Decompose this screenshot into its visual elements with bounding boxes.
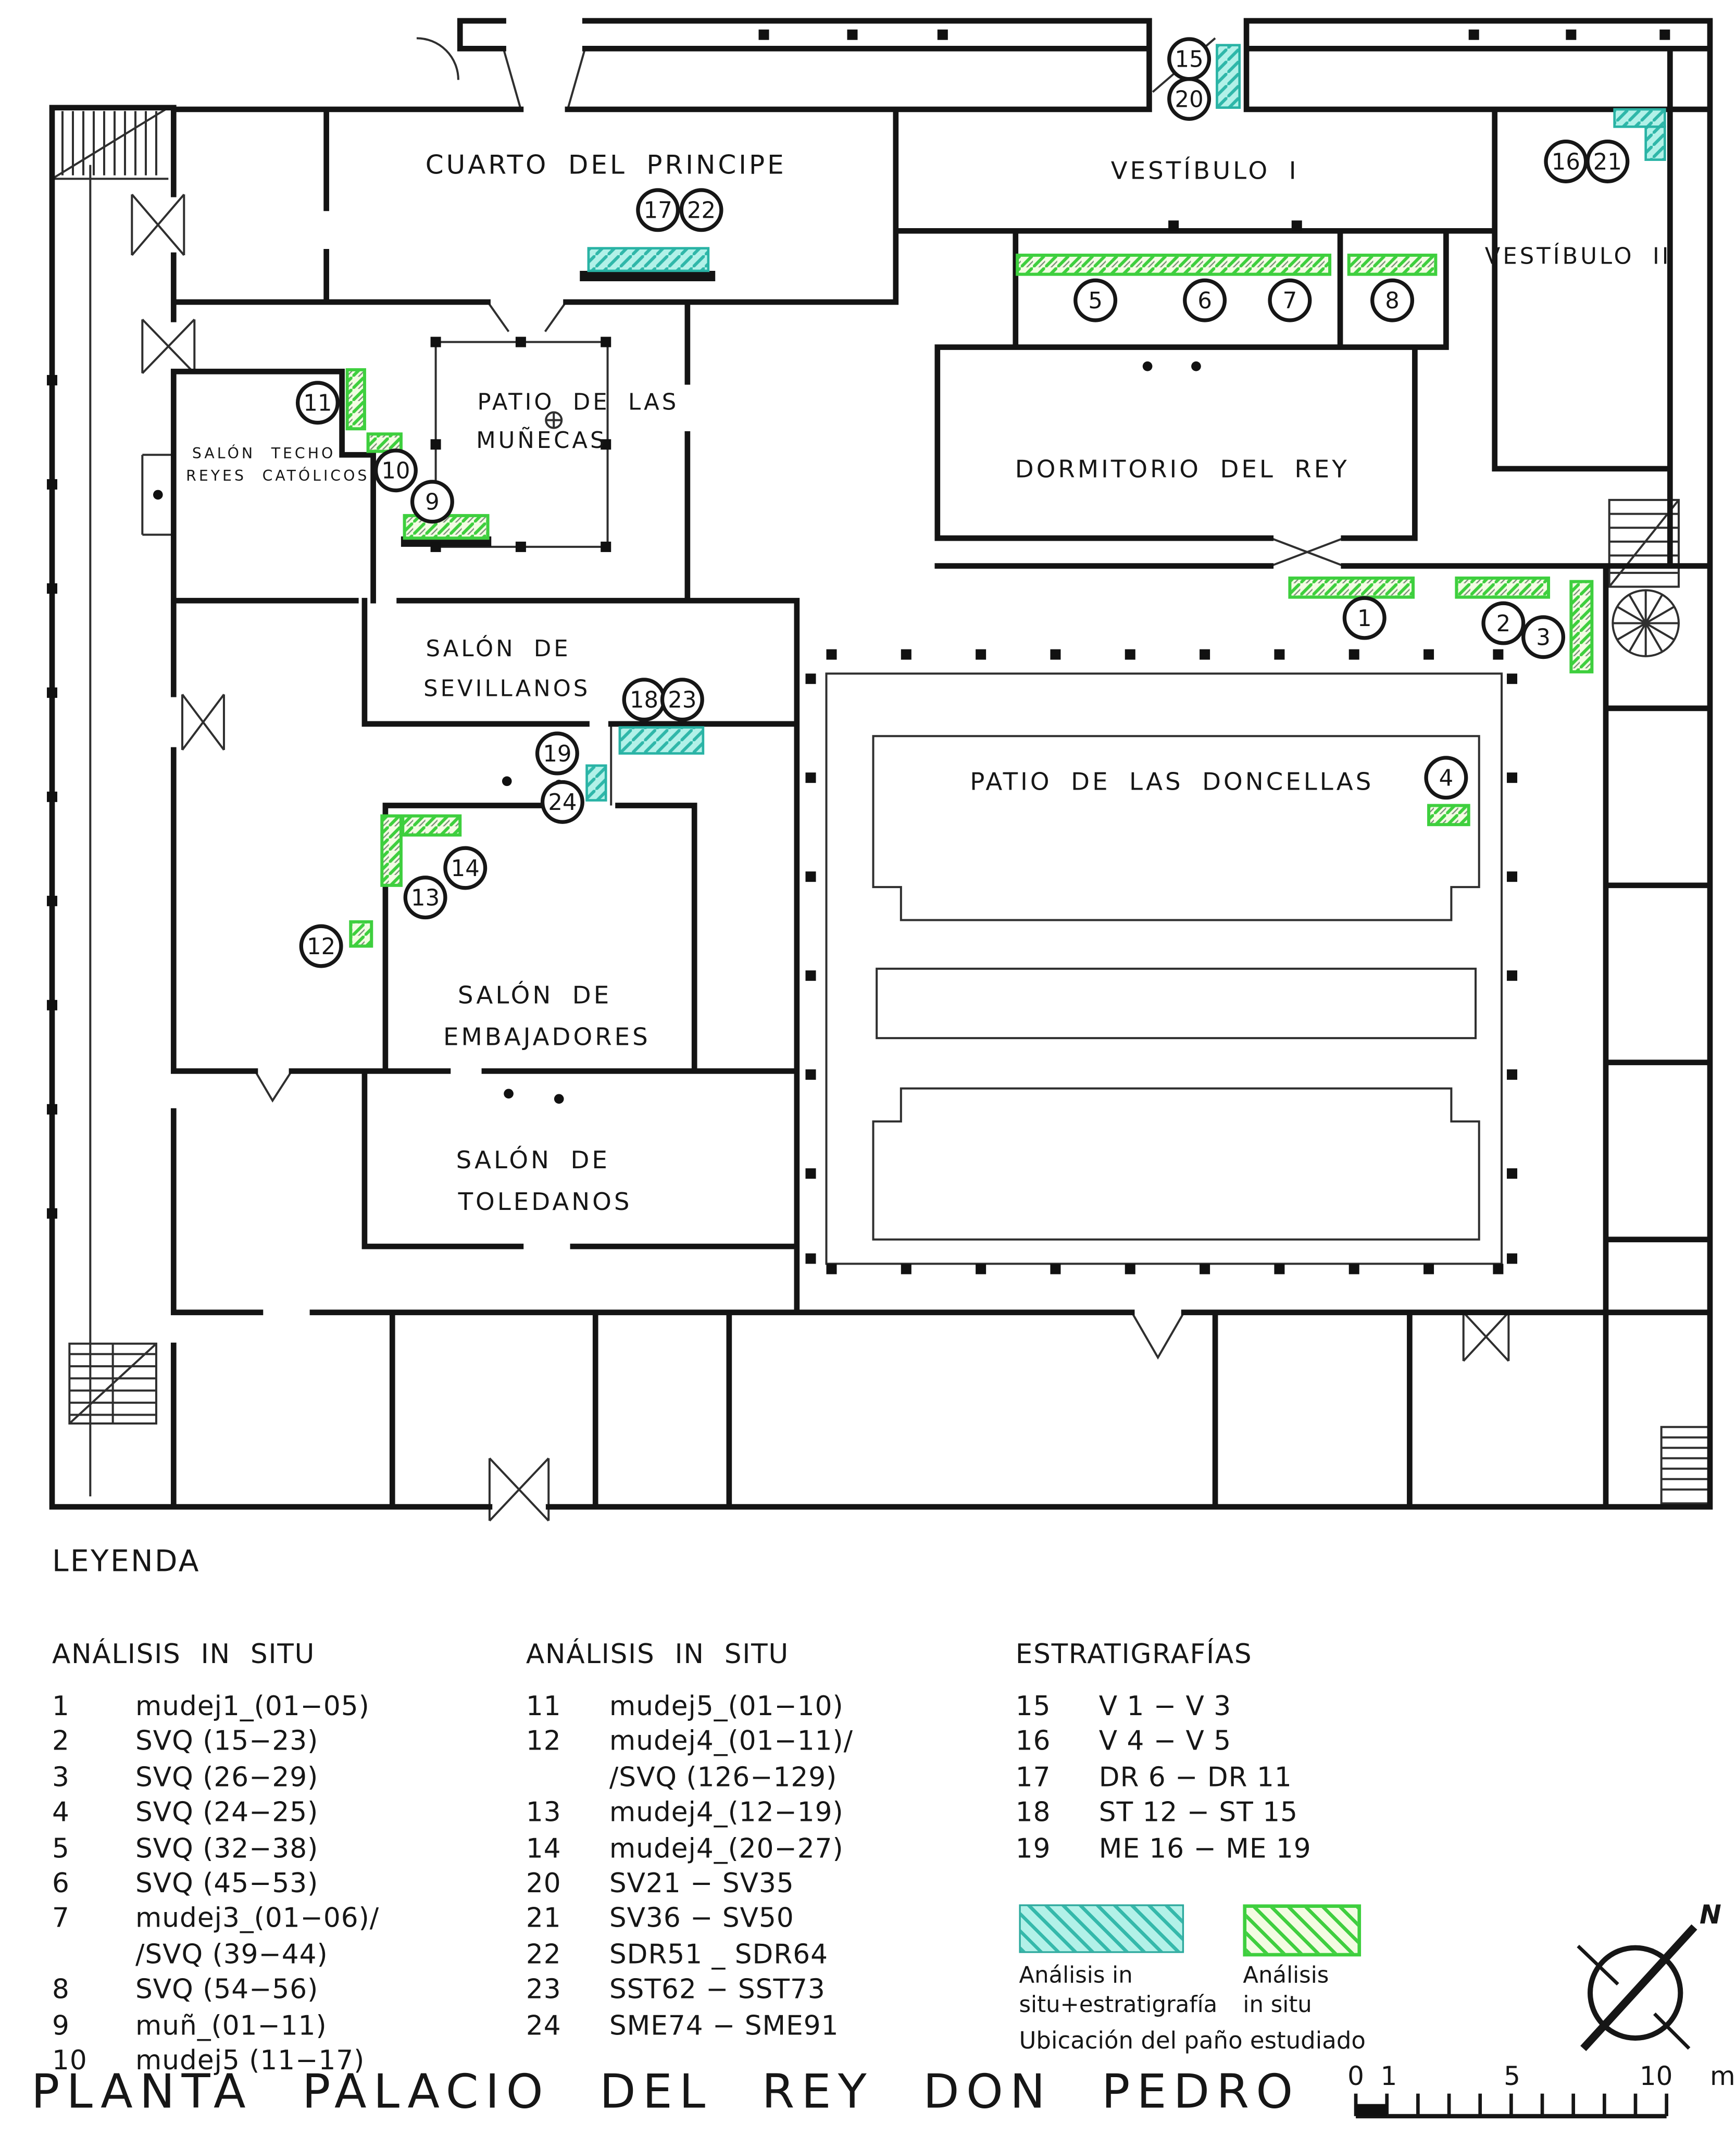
hatch-green-5-6-7 [1017, 255, 1330, 274]
legend-item-8: 8SVQ (54−56) [52, 1972, 507, 2008]
legend-item-number: 14 [526, 1831, 609, 1866]
marker-9: 9 [413, 482, 453, 522]
hatch-cyan-16-21-a [1615, 109, 1665, 127]
scale-10: 10 [1640, 2061, 1673, 2091]
legend-item-number: 8 [52, 1972, 135, 2008]
svg-text:22: 22 [687, 198, 716, 224]
marker-8: 8 [1372, 280, 1413, 320]
legend-item-23: 23SST62 − SST73 [526, 1972, 998, 2008]
legend-item-24: 24SME74 − SME91 [526, 2008, 998, 2043]
legend-item-number: 11 [526, 1689, 609, 1725]
svg-text:16: 16 [1552, 149, 1580, 175]
room-label: VESTÍBULO II [1485, 243, 1671, 270]
room-label: CUARTO DEL PRINCIPE [426, 149, 786, 180]
legend-column-2: ANÁLISIS IN SITU 11mudej5_(01−10)12mudej… [526, 1639, 998, 2043]
room-label: DORMITORIO DEL REY [1015, 456, 1350, 484]
legend-item-label: V 4 − V 5 [1099, 1725, 1231, 1760]
door-x-6 [1464, 1313, 1509, 1361]
legend-item-number: 24 [526, 2008, 609, 2043]
legend-item-number: 20 [526, 1866, 609, 1902]
hatch-cyan-18-23 [620, 728, 703, 754]
north-arrow: N [1578, 1900, 1721, 2048]
legend-item-label: SVQ (24−25) [135, 1795, 318, 1831]
marker-3: 3 [1523, 617, 1564, 657]
room-label: TOLEDANOS [458, 1188, 632, 1216]
legend-item-number: 12 [526, 1725, 609, 1760]
room-label: SALÓN DE [456, 1146, 610, 1175]
legend-item-label: mudej4_(20−27) [609, 1831, 844, 1866]
svg-text:21: 21 [1593, 149, 1622, 175]
legend-item-14: 14mudej4_(20−27) [526, 1831, 998, 1866]
legend-item-number: 21 [526, 1902, 609, 1937]
marker-6: 6 [1185, 280, 1225, 320]
svg-text:4: 4 [1439, 766, 1454, 792]
door-x-3 [182, 694, 224, 750]
legend-item-7-cont: /SVQ (39−44) [52, 1937, 507, 1972]
swatch-label-line: Análisis in [1019, 1964, 1241, 1992]
legend-item-number: 3 [52, 1760, 135, 1795]
marker-15: 15 [1169, 39, 1209, 79]
swatch-label-green: Análisisin situ [1243, 1964, 1399, 2021]
room-label: MUÑECAS [476, 427, 607, 454]
legend-item-4: 4SVQ (24−25) [52, 1795, 507, 1831]
marker-22: 22 [681, 190, 721, 230]
legend-item-9: 9muñ_(01−11) [52, 2008, 507, 2043]
legend-item-number: 1 [52, 1689, 135, 1725]
svg-text:1: 1 [1357, 606, 1372, 632]
page-viewport: 123456789101112131415161718192021222324 … [0, 0, 1736, 2136]
marker-18: 18 [624, 680, 664, 720]
svg-text:6: 6 [1197, 288, 1212, 314]
legend-item-number: 9 [52, 2008, 135, 2043]
legend-item-label: SVQ (26−29) [135, 1760, 318, 1795]
legend-item-6: 6SVQ (45−53) [52, 1866, 507, 1902]
scale-5: 5 [1504, 2061, 1520, 2091]
door-x-1 [132, 194, 184, 255]
room-label: PATIO DE LAS DONCELLAS [970, 768, 1373, 796]
legend-column-3: ESTRATIGRAFÍAS 15V 1 − V 316V 4 − V 517D… [1016, 1639, 1380, 1866]
doncellas-parterre-top [873, 736, 1479, 920]
hatch-green-8 [1349, 255, 1436, 274]
legend-item-label: mudej4_(12−19) [609, 1795, 844, 1831]
svg-text:12: 12 [307, 934, 335, 960]
legend-item-label: ST 12 − ST 15 [1099, 1795, 1298, 1831]
legend-item-label: SME74 − SME91 [609, 2008, 839, 2043]
legend-item-label: V 1 − V 3 [1099, 1689, 1231, 1725]
legend-item-label: SVQ (32−38) [135, 1831, 318, 1866]
svg-text:24: 24 [548, 790, 577, 816]
legend-item-label: SV36 − SV50 [609, 1902, 794, 1937]
legend-heading: LEYENDA [52, 1545, 201, 1580]
marker-2: 2 [1483, 603, 1523, 643]
marker-17: 17 [638, 190, 678, 230]
legend-item-label: mudej5_(01−10) [609, 1689, 844, 1725]
swatch-label-line: situ+estratigrafía [1019, 1992, 1241, 2021]
svg-text:10: 10 [381, 458, 410, 484]
svg-text:15: 15 [1175, 47, 1204, 73]
marker-14: 14 [445, 848, 485, 888]
drawing-title: PLANTA PALACIO DEL REY DON PEDRO [31, 2066, 1300, 2119]
legend-item-5: 5SVQ (32−38) [52, 1831, 507, 1866]
marker-13: 13 [405, 878, 445, 918]
swatch-analisis-in-situ [1243, 1904, 1361, 1956]
marker-11: 11 [298, 383, 338, 423]
door-x-4 [490, 1458, 548, 1521]
marker-5: 5 [1076, 280, 1116, 320]
svg-text:3: 3 [1536, 625, 1551, 651]
svg-text:17: 17 [644, 198, 672, 224]
marker-7: 7 [1270, 280, 1310, 320]
svg-text:19: 19 [543, 741, 571, 767]
legend-item-label: DR 6 − DR 11 [1099, 1760, 1292, 1795]
legend-item-number: 19 [1016, 1831, 1099, 1866]
marker-23: 23 [663, 680, 703, 720]
hatch-green-4 [1429, 806, 1469, 825]
legend-item-label: SST62 − SST73 [609, 1972, 826, 2008]
legend-item-label: SVQ (54−56) [135, 1972, 318, 2008]
legend-item-label: SVQ (45−53) [135, 1866, 318, 1902]
svg-text:2: 2 [1496, 611, 1511, 637]
legend-item-label: mudej1_(01−05) [135, 1689, 370, 1725]
swatch-label-line: Análisis [1243, 1964, 1399, 1992]
legend-item-label: muñ_(01−11) [135, 2008, 327, 2043]
legend-item-21: 21SV36 − SV50 [526, 1902, 998, 1937]
room-label: VESTÍBULO I [1111, 156, 1299, 185]
legend-item-label: mudej4_(01−11)/ [609, 1725, 853, 1760]
room-label: SALÓN TECHO [192, 444, 335, 462]
legend-item-label: mudej3_(01−06)/ [135, 1902, 379, 1937]
legend-item-number: 23 [526, 1972, 609, 2008]
legend-item-number: 4 [52, 1795, 135, 1831]
marker-10: 10 [376, 451, 416, 491]
legend-item-label: SV21 − SV35 [609, 1866, 794, 1902]
legend-item-19: 19ME 16 − ME 19 [1016, 1831, 1380, 1866]
svg-text:14: 14 [451, 856, 480, 882]
legend-item-20: 20SV21 − SV35 [526, 1866, 998, 1902]
stair-top-left [52, 108, 168, 179]
legend-item-number: 2 [52, 1725, 135, 1760]
hatch-green-3 [1571, 582, 1592, 672]
legend-item-13: 13mudej4_(12−19) [526, 1795, 998, 1831]
svg-text:8: 8 [1385, 288, 1400, 314]
svg-text:9: 9 [425, 490, 440, 516]
scale-0: 0 [1347, 2061, 1364, 2091]
legend-item-number: 18 [1016, 1795, 1099, 1831]
legend-item-number: 7 [52, 1902, 135, 1937]
legend-item-12-cont: /SVQ (126−129) [526, 1760, 998, 1795]
scale-bar-ticks [1356, 2094, 1667, 2116]
legend-item-15: 15V 1 − V 3 [1016, 1689, 1380, 1725]
scale-unit: m [1710, 2061, 1735, 2091]
legend-item-1: 1mudej1_(01−05) [52, 1689, 507, 1725]
scale-1: 1 [1380, 2061, 1397, 2091]
legend-item-number: 15 [1016, 1689, 1099, 1725]
legend-item-label: /SVQ (126−129) [609, 1760, 837, 1795]
legend-item-17: 17DR 6 − DR 11 [1016, 1760, 1380, 1795]
legend-column-1-heading: ANÁLISIS IN SITU [52, 1639, 507, 1670]
svg-text:7: 7 [1283, 288, 1297, 314]
marker-4: 4 [1426, 758, 1466, 798]
legend-item-18: 18ST 12 − ST 15 [1016, 1795, 1380, 1831]
stair-bottom-right [1662, 1427, 1710, 1504]
legend-item-22: 22SDR51 _ SDR64 [526, 1937, 998, 1972]
svg-text:5: 5 [1088, 288, 1103, 314]
marker-16: 16 [1546, 142, 1586, 182]
legend-note: Ubicación del paño estudiado [1019, 2028, 1365, 2055]
hatch-green-13 [382, 816, 401, 885]
doncellas-parterre-middle [877, 969, 1476, 1038]
legend-column-2-heading: ANÁLISIS IN SITU [526, 1639, 998, 1670]
svg-text:23: 23 [668, 688, 696, 714]
legend-item-number: 17 [1016, 1760, 1099, 1795]
svg-text:13: 13 [411, 885, 440, 911]
swatch-label-cyan: Análisis insitu+estratigrafía [1019, 1964, 1241, 2021]
legend-item-label: /SVQ (39−44) [135, 1937, 328, 1972]
svg-text:18: 18 [630, 688, 658, 714]
marker-20: 20 [1169, 79, 1209, 119]
room-label: SALÓN DE [458, 981, 611, 1009]
marker-21: 21 [1588, 142, 1628, 182]
legend-item-label: SVQ (15−23) [135, 1725, 318, 1760]
hatch-cyan-17-22 [589, 248, 708, 271]
legend-item-number [52, 1937, 135, 1972]
room-label: SEVILLANOS [423, 676, 590, 702]
scale-bar-first-segment [1356, 2104, 1387, 2116]
hatch-cyan-16-21-b [1646, 127, 1665, 159]
legend-item-12: 12mudej4_(01−11)/ [526, 1725, 998, 1760]
doncellas-parterre-bottom [873, 1089, 1479, 1240]
marker-24: 24 [543, 782, 583, 822]
legend-item-7: 7mudej3_(01−06)/ [52, 1902, 507, 1937]
legend-item-number: 22 [526, 1937, 609, 1972]
hatch-cyan-15-20 [1217, 45, 1239, 108]
legend-item-number [526, 1760, 609, 1795]
legend-item-2: 2SVQ (15−23) [52, 1725, 507, 1760]
marker-12: 12 [301, 926, 341, 966]
scale-bar: 0 1 5 10 m [1347, 2061, 1735, 2116]
hatch-green-2 [1456, 578, 1548, 597]
floor-plan-page: 123456789101112131415161718192021222324 … [0, 0, 1736, 2136]
legend-column-1: ANÁLISIS IN SITU 1mudej1_(01−05)2SVQ (15… [52, 1639, 507, 2079]
room-label: PATIO DE LAS [478, 390, 679, 416]
legend-item-number: 5 [52, 1831, 135, 1866]
swatch-analisis-situ-estratigrafia [1019, 1904, 1184, 1953]
arc-detail [417, 38, 458, 80]
stair-bottom-left [69, 1344, 156, 1423]
legend-item-label: SDR51 _ SDR64 [609, 1937, 828, 1972]
hatch-green-11 [347, 370, 365, 429]
legend-column-3-heading: ESTRATIGRAFÍAS [1016, 1639, 1380, 1670]
room-label: SALÓN DE [426, 635, 570, 662]
marker-19: 19 [538, 733, 578, 773]
north-label: N [1700, 1900, 1721, 1930]
legend-item-label: ME 16 − ME 19 [1099, 1831, 1312, 1866]
svg-text:20: 20 [1175, 86, 1204, 113]
hatch-green-9 [405, 516, 488, 538]
legend-item-11: 11mudej5_(01−10) [526, 1689, 998, 1725]
svg-text:11: 11 [303, 391, 332, 417]
legend-item-16: 16V 4 − V 5 [1016, 1725, 1380, 1760]
legend-item-number: 16 [1016, 1725, 1099, 1760]
legend-item-number: 6 [52, 1866, 135, 1902]
legend-item-3: 3SVQ (26−29) [52, 1760, 507, 1795]
room-label: REYES CATÓLICOS [186, 467, 369, 484]
legend-item-number: 13 [526, 1795, 609, 1831]
hatch-green-1 [1290, 578, 1413, 597]
hatch-green-12 [351, 922, 371, 946]
hatch-green-14 [403, 816, 460, 835]
marker-1: 1 [1344, 598, 1384, 638]
door-x-2 [142, 319, 194, 373]
swatch-label-line: in situ [1243, 1992, 1399, 2021]
hatch-cyan-19-24 [587, 766, 606, 801]
room-label: EMBAJADORES [443, 1023, 651, 1051]
door-v-toledanos [255, 1071, 292, 1101]
door-v-doncellas [1132, 1313, 1184, 1358]
door-x-5 [1271, 538, 1344, 566]
